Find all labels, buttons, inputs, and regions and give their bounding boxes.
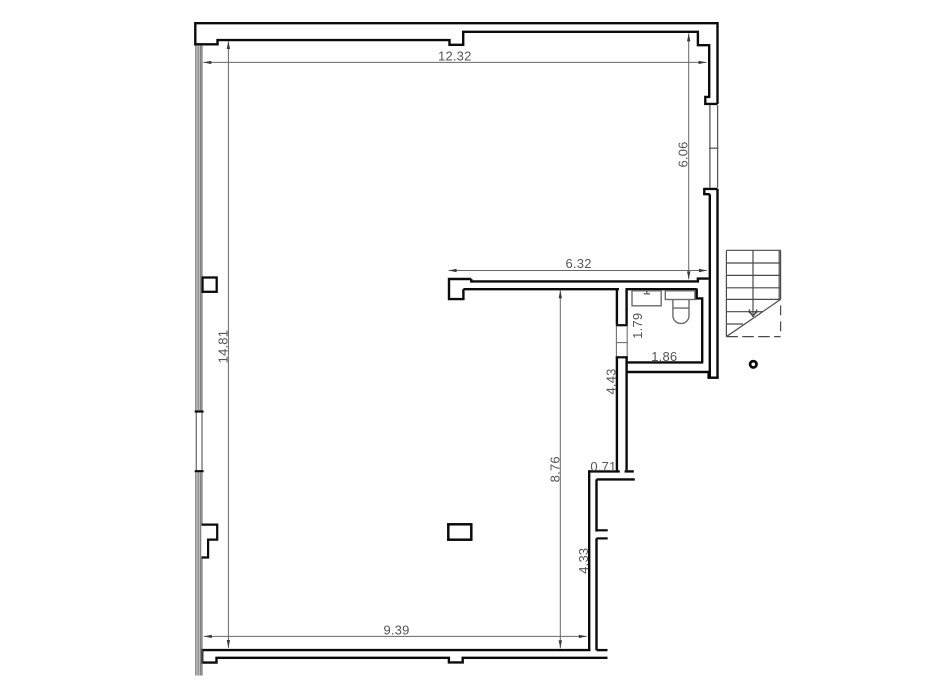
svg-text:1.79: 1.79 — [630, 313, 645, 339]
svg-text:9.39: 9.39 — [383, 622, 409, 637]
svg-text:0.71: 0.71 — [590, 459, 616, 474]
svg-text:14.81: 14.81 — [216, 330, 231, 364]
svg-text:1.86: 1.86 — [651, 349, 677, 364]
svg-text:6.32: 6.32 — [566, 256, 592, 271]
svg-text:4.33: 4.33 — [576, 548, 591, 574]
svg-text:12.32: 12.32 — [438, 49, 472, 64]
svg-text:4.43: 4.43 — [604, 368, 619, 394]
svg-text:8.76: 8.76 — [547, 456, 562, 482]
svg-text:6.06: 6.06 — [675, 141, 690, 167]
